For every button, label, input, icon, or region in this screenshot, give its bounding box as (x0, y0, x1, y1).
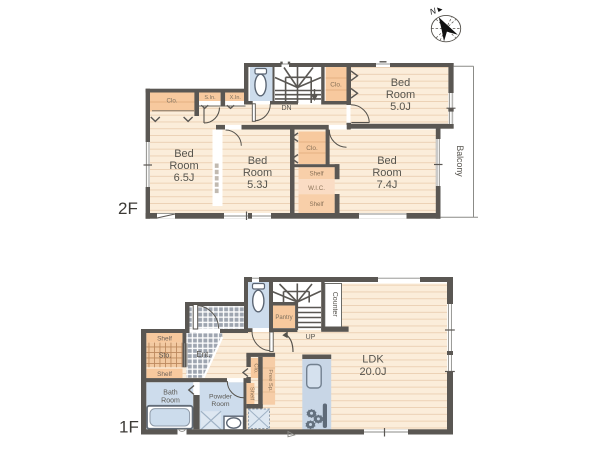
svg-text:Room: Room (169, 160, 198, 172)
svg-text:Shelf: Shelf (309, 201, 323, 208)
svg-text:Bath: Bath (163, 390, 178, 397)
svg-text:5.0J: 5.0J (390, 101, 411, 113)
svg-text:20.0J: 20.0J (360, 366, 387, 378)
svg-text:S.In.: S.In. (204, 95, 216, 101)
svg-text:W.I.C.: W.I.C. (308, 185, 325, 192)
svg-text:Room: Room (211, 401, 229, 408)
svg-text:1F: 1F (119, 418, 139, 437)
svg-text:Shelf: Shelf (157, 371, 172, 378)
svg-text:Bed: Bed (248, 155, 268, 167)
svg-text:Balcony: Balcony (455, 145, 465, 177)
svg-text:Shelf: Shelf (157, 336, 172, 343)
svg-text:Clo.: Clo. (253, 363, 259, 374)
svg-text:Clo.: Clo. (330, 82, 342, 89)
svg-text:Ent.: Ent. (196, 350, 210, 359)
svg-text:Bed: Bed (377, 155, 397, 167)
svg-text:5.3J: 5.3J (247, 179, 268, 191)
svg-text:Shelf: Shelf (249, 387, 255, 401)
svg-text:X.In.: X.In. (230, 95, 242, 101)
svg-text:Free Sp.: Free Sp. (267, 369, 273, 392)
svg-text:Room: Room (386, 89, 415, 101)
svg-text:Shelf: Shelf (309, 171, 323, 178)
svg-text:7.4J: 7.4J (377, 179, 398, 191)
svg-text:Sto.: Sto. (159, 353, 172, 360)
svg-text:Bed: Bed (391, 77, 411, 89)
svg-text:6.5J: 6.5J (174, 172, 195, 184)
svg-text:Powder: Powder (209, 394, 233, 401)
svg-text:DN: DN (281, 105, 291, 112)
svg-text:LDK: LDK (362, 354, 384, 366)
svg-text:Room: Room (243, 167, 272, 179)
svg-text:Clo.: Clo. (166, 98, 177, 105)
svg-text:Bed: Bed (174, 148, 194, 160)
svg-text:Clo.: Clo. (306, 145, 318, 152)
svg-text:Room: Room (372, 167, 401, 179)
svg-text:Room: Room (161, 398, 180, 405)
svg-text:2F: 2F (118, 199, 138, 218)
svg-text:Pantry: Pantry (275, 315, 292, 321)
svg-text:UP: UP (306, 334, 316, 341)
svg-text:Counter: Counter (331, 292, 338, 318)
